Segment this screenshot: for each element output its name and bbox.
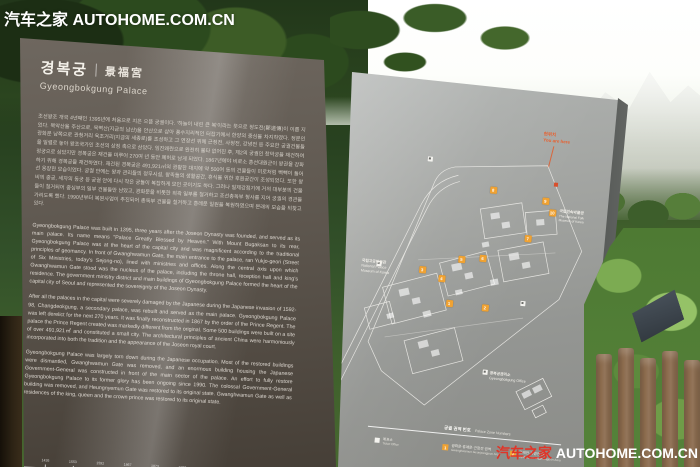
zone-1-english: Gwanghwamun·Geunjeongjeon Area [451, 448, 500, 457]
map-zone-marker: 8 [489, 186, 497, 194]
watermark-english: AUTOHOME.COM.CN [556, 445, 698, 461]
map-zone-marker: 4 [438, 274, 446, 282]
timeline-year: 1553 [58, 459, 88, 465]
legend-zone-1: 1 광화문·흥례문·근정전 권역 Gwanghwamun·Geunjeongje… [442, 443, 501, 457]
left-sign-panel: 경복궁 景福宮 Gyeongbokgung Palace 조선왕조 개국 4년째… [18, 38, 338, 467]
title-korean: 경복궁 [40, 57, 88, 80]
english-description: Gyeongbokgung Palace was built in 1395, … [23, 222, 300, 411]
map-marker-layer: 12345678910 [317, 132, 595, 440]
you-are-here-english: You are here [543, 137, 570, 145]
map-zone-marker: 5 [458, 255, 466, 263]
watermark-top-left: 汽车之家 AUTOHOME.COM.CN [4, 6, 235, 30]
map-zone-marker: 3 [418, 265, 426, 273]
ticket-office-english: Ticket Office [382, 442, 399, 447]
timeline-year: 1867 [113, 462, 143, 467]
map-zone-marker: 9 [542, 197, 550, 205]
map-zone-marker: 2 [481, 304, 489, 312]
timeline-year: 1426 [30, 458, 60, 464]
english-paragraph-1: Gyeongbokgung Palace was built in 1395, … [29, 222, 300, 300]
timeline-year: 1873 [140, 463, 170, 467]
history-timeline: 1395142615531592186718731895191019261990… [17, 457, 292, 467]
map-facility-marker [428, 156, 433, 161]
title-hanja: 景福宮 [105, 63, 145, 81]
map-zone-marker: 6 [479, 254, 487, 262]
legend-ticket-office: 매표소 Ticket Office [374, 436, 399, 447]
timeline-year: 1592 [85, 461, 115, 467]
ticket-office-icon [374, 437, 379, 442]
map-facility-marker [520, 301, 525, 306]
watermark-chinese: 汽车之家 [496, 445, 552, 461]
ticket-office-label: 매표소 Ticket Office [382, 437, 399, 447]
legend-heading-english: Palace Zone Numbers [475, 429, 511, 436]
right-map-content: 현위치 You are here [308, 70, 606, 467]
watermark-bottom-right: 汽车之家 AUTOHOME.COM.CN [496, 443, 698, 463]
map-zone-marker: 7 [524, 234, 532, 242]
map-zone-marker: 10 [548, 209, 556, 217]
map-facility-marker [482, 370, 487, 375]
korean-description: 조선왕조 개국 4년째인 1395년에 처음으로 지은 으뜸 궁궐이다. '하늘… [33, 113, 306, 223]
zone-1-label: 광화문·흥례문·근정전 권역 Gwanghwamun·Geunjeongjeon… [451, 444, 501, 457]
zone-1-number-icon: 1 [442, 444, 449, 451]
right-map-panel: 현위치 You are here [336, 70, 622, 467]
english-paragraph-3: Gyeongbokgung Palace was largely torn do… [23, 348, 293, 410]
timeline-ticks: 1395142615531592186718731895191019261990… [18, 457, 292, 467]
map-zone-marker: 1 [445, 299, 453, 307]
title-divider [96, 64, 98, 77]
photo-scene: 경복궁 景福宮 Gyeongbokgung Palace 조선왕조 개국 4년째… [0, 0, 700, 467]
you-are-here-label: 현위치 You are here [543, 131, 590, 147]
english-paragraph-2: After all the palaces in the capital wer… [26, 293, 296, 355]
left-sign-content: 경복궁 景福宮 Gyeongbokgung Palace 조선왕조 개국 4년째… [5, 42, 324, 467]
tree-trunk [0, 316, 22, 467]
